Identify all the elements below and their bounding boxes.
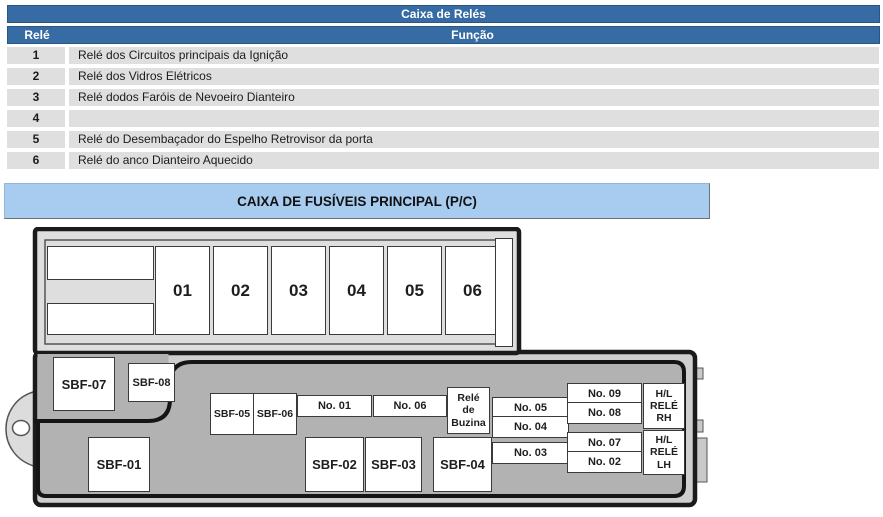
fusebox-diagram: 01 02 03 04 05 06 SBF-07 SBF-08 SBF-05 S… <box>0 227 883 517</box>
slot-sbf-01: SBF-01 <box>88 437 150 492</box>
manual-page: Caixa de Relés Relé Função 1 Relé dos Ci… <box>0 0 883 517</box>
table-row: 1 Relé dos Circuitos principais da Igniç… <box>7 47 879 64</box>
end-connector <box>495 238 513 347</box>
slot-no-02: No. 02 <box>567 451 642 473</box>
table-row: 3 Relé dodos Faróis de Nevoeiro Dianteir… <box>7 89 879 106</box>
relay-function <box>69 110 879 127</box>
slot-no-06: No. 06 <box>373 395 447 417</box>
table-row: 4 <box>7 110 879 127</box>
slot-hl-relay-rh: H/L RELÉ RH <box>643 383 685 429</box>
slot-sbf-07: SBF-07 <box>53 357 115 411</box>
column-header-funcao: Função <box>66 28 879 42</box>
relay-table-title: Caixa de Relés <box>7 5 880 23</box>
relay-number: 6 <box>7 152 65 169</box>
fuse-slot-01: 01 <box>155 246 210 335</box>
fuse-slot-02: 02 <box>213 246 268 335</box>
relay-number: 3 <box>7 89 65 106</box>
fuse-slot-05: 05 <box>387 246 442 335</box>
table-row: 5 Relé do Desembaçador do Espelho Retrov… <box>7 131 879 148</box>
slot-horn-relay: Relé de Buzina <box>447 387 490 434</box>
relay-number: 5 <box>7 131 65 148</box>
relay-table-header: Relé Função <box>7 26 880 44</box>
relay-function: Relé do anco Dianteiro Aquecido <box>69 152 879 169</box>
slot-sbf-05: SBF-05 <box>210 393 254 435</box>
slot-hl-relay-lh: H/L RELÉ LH <box>643 430 685 475</box>
relay-number: 2 <box>7 68 65 85</box>
fusebox-section-title: CAIXA DE FUSÍVEIS PRINCIPAL (P/C) <box>4 183 710 219</box>
slot-sbf-04: SBF-04 <box>433 437 492 492</box>
slot-no-01: No. 01 <box>297 395 372 417</box>
slot-sbf-03: SBF-03 <box>365 437 422 492</box>
slot-no-04: No. 04 <box>492 416 569 438</box>
relay-function: Relé dos Vidros Elétricos <box>69 68 879 85</box>
table-row: 6 Relé do anco Dianteiro Aquecido <box>7 152 879 169</box>
slot-no-03: No. 03 <box>492 442 569 464</box>
table-row: 2 Relé dos Vidros Elétricos <box>7 68 879 85</box>
relay-number: 4 <box>7 110 65 127</box>
relay-function: Relé dodos Faróis de Nevoeiro Dianteiro <box>69 89 879 106</box>
fuse-slot-03: 03 <box>271 246 326 335</box>
relay-function: Relé dos Circuitos principais da Ignição <box>69 47 879 64</box>
slot-no-08: No. 08 <box>567 402 642 424</box>
blank-connector <box>47 303 154 335</box>
fuse-slot-06: 06 <box>445 246 500 335</box>
slot-sbf-06: SBF-06 <box>253 393 297 435</box>
blank-connector <box>47 246 154 280</box>
relay-number: 1 <box>7 47 65 64</box>
mounting-hole-icon <box>13 421 30 436</box>
column-header-rele: Relé <box>8 28 66 42</box>
fuse-slot-04: 04 <box>329 246 384 335</box>
relay-function: Relé do Desembaçador do Espelho Retrovis… <box>69 131 879 148</box>
slot-sbf-02: SBF-02 <box>305 437 364 492</box>
slot-sbf-08: SBF-08 <box>128 363 175 402</box>
